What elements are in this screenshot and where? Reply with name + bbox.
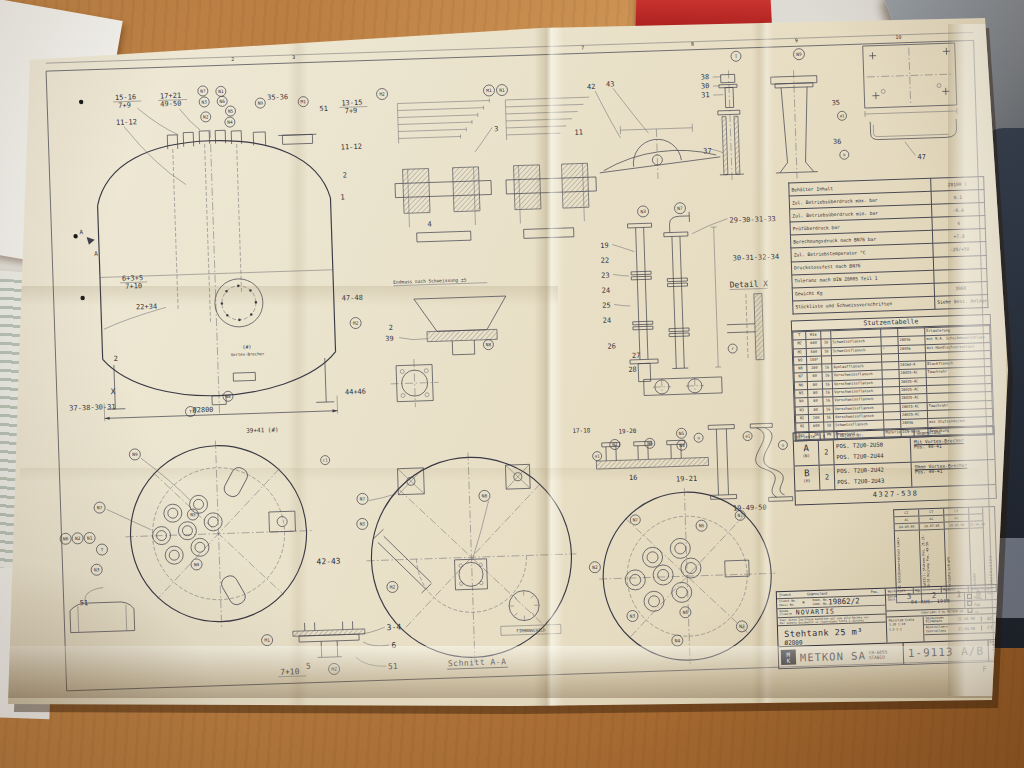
svg-text:1: 1 xyxy=(340,193,344,201)
svg-text:29-30-31-33: 29-30-31-33 xyxy=(729,215,776,225)
svg-text:N2: N2 xyxy=(75,536,81,541)
svg-text:N4: N4 xyxy=(679,443,685,448)
svg-text:M1: M1 xyxy=(486,88,492,93)
svg-text:47-48: 47-48 xyxy=(342,294,363,303)
punch-hole xyxy=(80,296,85,301)
svg-text:N5: N5 xyxy=(679,431,685,436)
svg-text:N8: N8 xyxy=(486,342,492,347)
tank-bottom-view-circle: N7 N3 N8 M2 xyxy=(355,449,580,666)
checkbox-icon xyxy=(967,601,973,607)
corner-letter: F xyxy=(982,665,986,673)
grid-number: 8 xyxy=(691,41,694,47)
svg-text:N9: N9 xyxy=(257,101,263,106)
svg-text:FIRMENSCHILD: FIRMENSCHILD xyxy=(516,627,546,633)
svg-text:a1: a1 xyxy=(595,453,601,458)
grid-number: 2 xyxy=(231,56,234,62)
svg-text:A: A xyxy=(79,228,83,235)
svg-text:k: k xyxy=(843,152,846,157)
svg-text:N5: N5 xyxy=(190,512,196,517)
svg-text:N3: N3 xyxy=(201,99,207,104)
svg-text:37-38-30-31: 37-38-30-31 xyxy=(69,403,116,413)
variant-table: Variante X Objekt-Nr. Gegenstand A(N) 2 … xyxy=(792,426,996,506)
svg-text:a1: a1 xyxy=(745,433,751,438)
svg-text:39+41 (#): 39+41 (#) xyxy=(246,426,279,434)
svg-text:N9: N9 xyxy=(796,52,802,57)
svg-text:3: 3 xyxy=(494,125,498,133)
svg-text:M2: M2 xyxy=(379,92,385,97)
svg-text:2: 2 xyxy=(343,171,347,179)
section-title: Schnitt A-A xyxy=(448,657,507,668)
svg-text:26: 26 xyxy=(607,342,616,350)
svg-text:42-43: 42-43 xyxy=(316,557,341,567)
svg-text:N3: N3 xyxy=(359,521,365,526)
svg-text:M2: M2 xyxy=(353,321,359,326)
drawing-paper: 2 3 7 8 9 10 F xyxy=(0,0,1024,768)
svg-text:7+10: 7+10 xyxy=(125,282,142,291)
svg-text:N7: N7 xyxy=(97,505,103,510)
tank-callout-labels: 15-16 7+9 17+21 49-50 11-12 35-36 51 22+… xyxy=(59,87,339,440)
svg-text:22: 22 xyxy=(601,257,610,265)
table-cell: Siehe Best. Anlage xyxy=(935,294,988,309)
company-name: METKON SA xyxy=(796,649,866,663)
svg-text:N3: N3 xyxy=(94,567,100,572)
part-28-view xyxy=(644,377,722,396)
svg-text:27: 27 xyxy=(632,352,641,360)
tank-nozzle-callouts: N7 N1 N3 N6 N2 N5 N4 N9 M1 N8 T xyxy=(175,82,319,416)
customer-name: NOVARTIS xyxy=(792,607,836,616)
svg-text:51: 51 xyxy=(319,105,328,113)
svg-text:16: 16 xyxy=(629,474,638,482)
svg-text:u: u xyxy=(697,435,700,440)
svg-text:39: 39 xyxy=(385,335,394,343)
svg-text:17-18: 17-18 xyxy=(572,426,591,434)
bolt-detail-37-38: T 38 30 31 37 xyxy=(700,51,745,181)
svg-text:N3: N3 xyxy=(739,624,745,629)
detail-x-view: r xyxy=(726,294,764,361)
svg-text:11-12: 11-12 xyxy=(116,118,137,127)
svg-text:35: 35 xyxy=(831,99,840,107)
drawing-number: 1-9113 A/B xyxy=(902,640,988,664)
metkon-logo-icon: MK xyxy=(781,650,796,665)
svg-text:23: 23 xyxy=(601,272,610,280)
heating-stub-details: 17-18 19-20 N2 N6 N5 N4 a1 16 19-21 xyxy=(572,420,793,527)
svg-text:43: 43 xyxy=(606,80,615,88)
svg-text:N6: N6 xyxy=(63,536,69,541)
title-block: Stueck Gegenstand Pos. Stueck No.Pezzi N… xyxy=(776,584,1000,669)
dip-pipe-details: N3 N7 19 22 23 24 xyxy=(599,199,783,382)
svg-text:6: 6 xyxy=(391,641,396,650)
stutzentabelle: Stutzentabelle TM16ErläuterungM260010Sch… xyxy=(791,314,995,441)
svg-text:19-21: 19-21 xyxy=(676,475,697,484)
svg-text:N4: N4 xyxy=(675,638,681,643)
svg-text:N2: N2 xyxy=(592,565,598,570)
svg-text:N6: N6 xyxy=(219,99,225,104)
svg-text:N1: N1 xyxy=(499,88,505,93)
svg-text:37: 37 xyxy=(703,147,712,155)
svg-text:T: T xyxy=(101,547,104,552)
svg-text:31: 31 xyxy=(701,91,710,99)
svg-text:11: 11 xyxy=(574,128,583,136)
svg-text:22+34: 22+34 xyxy=(136,303,157,312)
svg-text:N7: N7 xyxy=(633,517,639,522)
grid-number: 7 xyxy=(581,44,584,50)
svg-text:19: 19 xyxy=(600,242,609,250)
svg-text:25: 25 xyxy=(602,302,611,310)
svg-text:11-12: 11-12 xyxy=(341,143,362,152)
svg-text:7+10: 7+10 xyxy=(280,667,300,677)
svg-text:c1: c1 xyxy=(323,457,329,462)
svg-text:N8: N8 xyxy=(225,394,231,399)
svg-text:T: T xyxy=(189,409,192,414)
svg-text:N5: N5 xyxy=(228,109,234,114)
segment-detail-42-43: 42 43 11 xyxy=(573,77,721,182)
svg-text:N3: N3 xyxy=(640,209,646,214)
svg-text:N2: N2 xyxy=(203,114,209,119)
flange-orientation-circle: N5 N2 N4 N3 N6 N3 xyxy=(587,485,778,667)
plate-detail-47: 47 35 a1 36 k xyxy=(830,43,959,164)
checkbox-icon xyxy=(967,594,973,600)
svg-text:N4: N4 xyxy=(227,120,233,125)
svg-text:N3: N3 xyxy=(630,614,636,619)
svg-text:a1: a1 xyxy=(840,113,846,118)
svg-text:T: T xyxy=(735,54,738,59)
nozzle-detail-n9: N9 xyxy=(770,48,820,179)
part-51-view: 51 xyxy=(69,587,134,633)
svg-text:N8: N8 xyxy=(482,493,488,498)
svg-text:Detail X: Detail X xyxy=(729,279,768,289)
svg-text:7+9: 7+9 xyxy=(344,107,357,115)
svg-text:28: 28 xyxy=(628,366,637,374)
approval-checkboxes: PROD FAB CQ xyxy=(964,592,997,608)
svg-text:M2: M2 xyxy=(331,666,337,671)
vessel-spec-table: Behälter Inhalt28100 lZul. Betriebsüberd… xyxy=(788,176,988,314)
svg-text:N4: N4 xyxy=(194,562,200,567)
svg-text:3-4: 3-4 xyxy=(387,623,402,632)
svg-text:X: X xyxy=(111,387,116,396)
svg-text:19-20: 19-20 xyxy=(618,427,637,435)
svg-text:N7: N7 xyxy=(677,206,683,211)
svg-text:49-50: 49-50 xyxy=(160,100,181,109)
svg-text:N9: N9 xyxy=(132,452,138,457)
svg-text:N1: N1 xyxy=(218,89,224,94)
drawing-sheet: 2 3 7 8 9 10 F xyxy=(17,18,998,705)
outlet-detail-39: 2 39 N8 44+46 xyxy=(342,296,509,409)
desk-scene: 2 3 7 8 9 10 F xyxy=(0,0,1024,768)
svg-text:42: 42 xyxy=(587,83,596,91)
svg-text:N6: N6 xyxy=(683,610,689,615)
svg-text:36: 36 xyxy=(833,138,842,146)
svg-text:30-31-32-34: 30-31-32-34 xyxy=(733,253,780,263)
grid-number: 10 xyxy=(895,34,901,40)
svg-text:51: 51 xyxy=(388,662,398,671)
svg-text:24: 24 xyxy=(603,317,612,325)
svg-text:M1: M1 xyxy=(264,638,270,643)
svg-text:2: 2 xyxy=(389,324,393,332)
svg-text:5: 5 xyxy=(306,662,311,671)
punch-hole xyxy=(79,100,84,105)
svg-text:2: 2 xyxy=(114,355,118,363)
svg-text:24: 24 xyxy=(602,287,611,295)
tank-elevation-view xyxy=(94,102,337,422)
svg-text:A: A xyxy=(94,250,98,257)
kommission-number: 19862/2 xyxy=(828,596,860,606)
grid-number: 3 xyxy=(292,54,295,60)
svg-text:N1: N1 xyxy=(87,535,93,540)
svg-text:N5: N5 xyxy=(699,523,705,528)
svg-text:Vortex-Brecher: Vortex-Brecher xyxy=(231,351,265,357)
signature-rows: GezeichnetDisegnato 22.04.98 AC Kontroll… xyxy=(924,614,999,641)
svg-text:M2: M2 xyxy=(390,584,396,589)
svg-text:7+9: 7+9 xyxy=(118,101,131,109)
company-location: CH-6855 STABIO xyxy=(866,649,903,660)
svg-text:44+46: 44+46 xyxy=(345,388,366,397)
flange-detail-m1-n1: M1 N1 xyxy=(483,82,598,240)
grid-number: 9 xyxy=(795,37,798,43)
punch-hole xyxy=(73,234,78,239)
svg-text:30: 30 xyxy=(701,82,710,90)
svg-text:38: 38 xyxy=(701,73,710,81)
svg-text:u: u xyxy=(782,442,785,447)
svg-text:M1: M1 xyxy=(300,99,306,104)
svg-text:r: r xyxy=(731,346,734,351)
svg-text:N7: N7 xyxy=(360,496,366,501)
svg-text:N7: N7 xyxy=(200,88,206,93)
svg-text:47: 47 xyxy=(917,153,926,161)
date-stamp: 04 AUG. 1998 xyxy=(897,593,965,610)
flange-detail-m2: M2 3 4 xyxy=(376,85,502,243)
svg-text:(#): (#) xyxy=(242,344,251,350)
scale-box: Massstab Scala 1:20 1:10 1:5 1:2 xyxy=(887,616,925,642)
svg-text:35-36: 35-36 xyxy=(267,93,288,102)
svg-text:4: 4 xyxy=(427,220,431,228)
